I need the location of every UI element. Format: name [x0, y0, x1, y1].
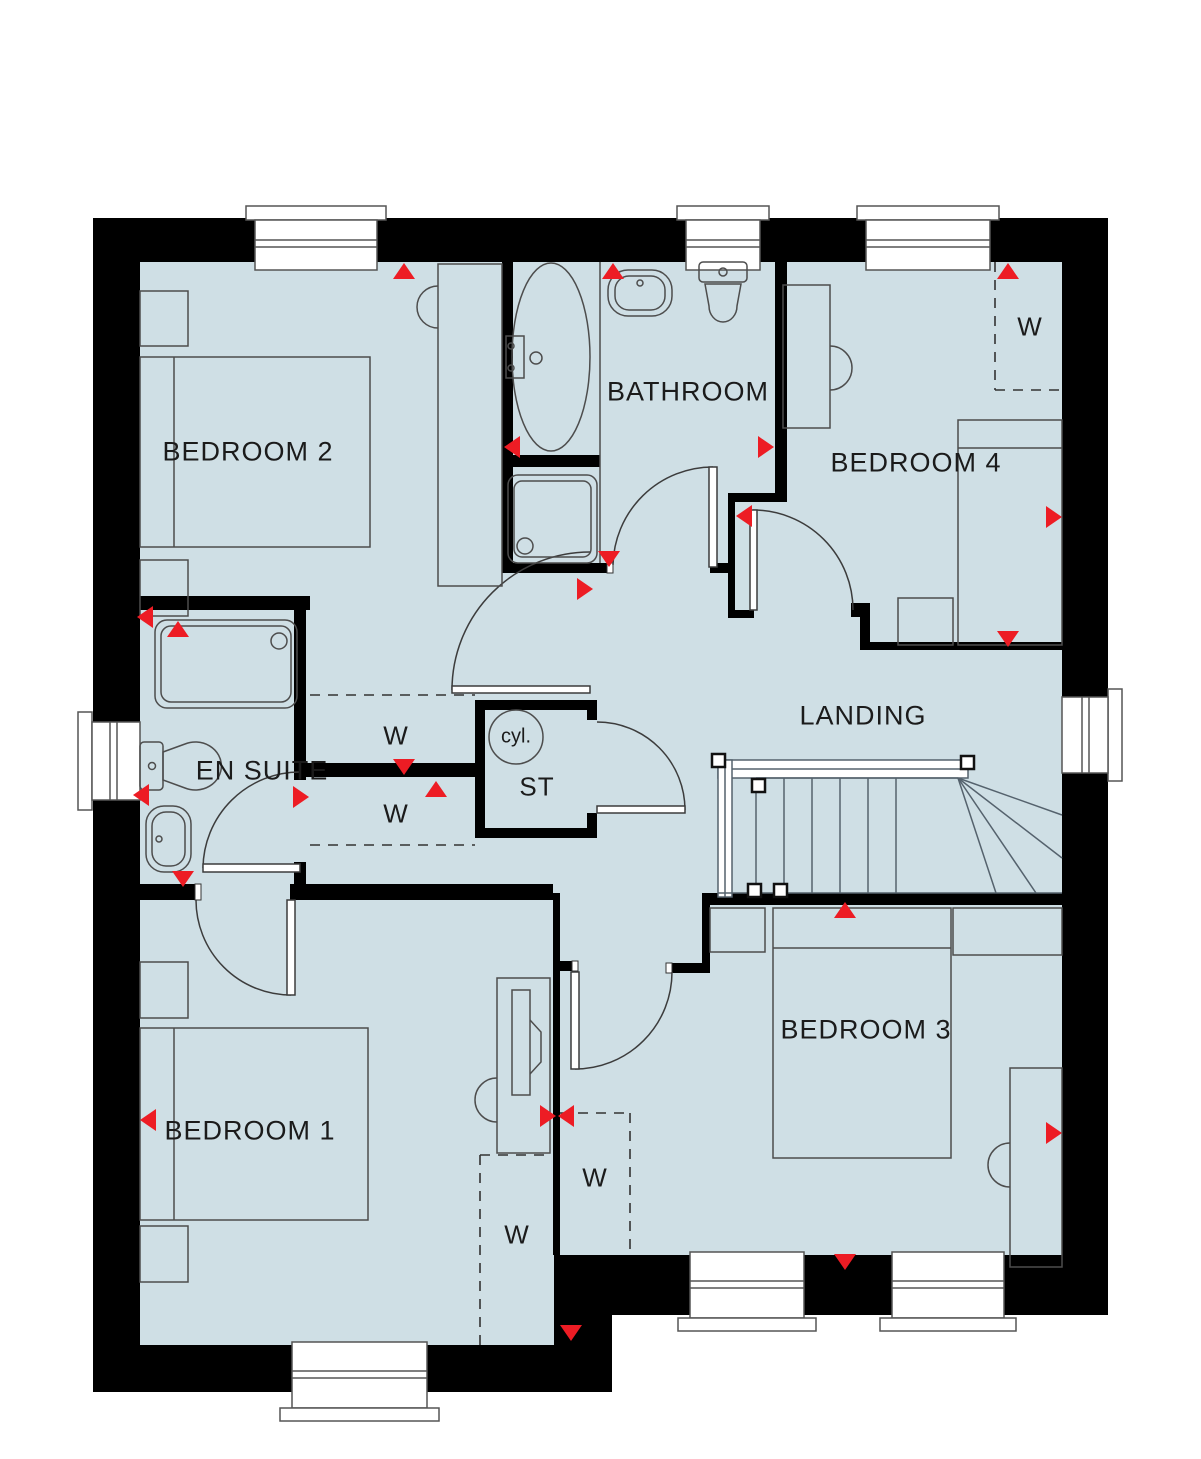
- window-bathroom: [677, 206, 769, 270]
- label-wardrobe-corridor-top: W: [383, 721, 409, 752]
- window-bedroom1: [280, 1342, 439, 1421]
- label-wardrobe-corridor-bottom: W: [383, 799, 409, 830]
- window-bedroom2: [246, 206, 386, 270]
- floor-plan-drawing: [0, 0, 1201, 1459]
- label-bathroom: BATHROOM: [607, 377, 769, 408]
- window-bedroom3-right: [880, 1252, 1016, 1331]
- window-landing: [1062, 689, 1122, 781]
- label-en-suite: EN SUITE: [196, 756, 329, 787]
- label-bedroom-3: BEDROOM 3: [780, 1015, 951, 1046]
- label-bedroom-2: BEDROOM 2: [162, 437, 333, 468]
- window-bedroom4: [857, 206, 999, 270]
- label-cylinder: cyl.: [501, 726, 531, 749]
- label-wardrobe-bedroom4: W: [1017, 312, 1043, 343]
- window-bedroom3-left: [678, 1252, 816, 1331]
- label-wardrobe-bedroom3: W: [582, 1163, 608, 1194]
- floor-plan: BEDROOM 2 BATHROOM BEDROOM 4 W EN SUITE …: [0, 0, 1201, 1459]
- label-bedroom-4: BEDROOM 4: [830, 448, 1001, 479]
- label-landing: LANDING: [799, 701, 926, 732]
- window-ensuite: [78, 712, 140, 810]
- label-wardrobe-bedroom1: W: [504, 1220, 530, 1251]
- label-storage: ST: [519, 772, 554, 803]
- label-bedroom-1: BEDROOM 1: [164, 1116, 335, 1147]
